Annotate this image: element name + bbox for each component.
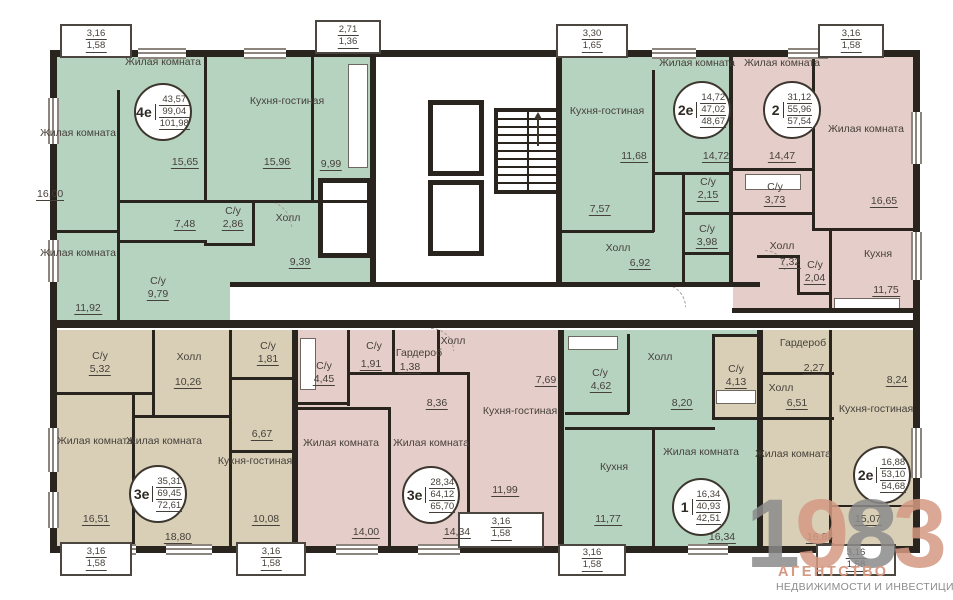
room-label-living: Жилая комната [125,57,201,69]
wall [392,330,395,374]
balcony-dim: 3,16 [841,28,862,40]
room-label-living: Жилая комната [40,248,116,260]
room-area: 9,39 [289,256,311,269]
balcony-dim: 1,58 [582,559,603,571]
apartment-type: 3е [134,486,154,502]
room-label-wardrobe: Гардероб [780,338,826,350]
wall [812,228,913,231]
apartment-badge-2: 2 31,12 55,96 57,54 [763,81,821,139]
room-area: 10,26 [174,376,202,389]
window [244,48,286,59]
room-area: 8,36 [426,397,448,410]
room-label-wc: С/у [699,224,715,236]
balcony-dimensions: 3,16 1,58 [582,547,603,572]
wall [152,330,155,415]
apartment-badge-3e-left: 3е 35,31 69,45 72,61 [129,465,187,523]
room-area: 14,34 [443,526,471,539]
balcony-dimensions: 3,16 1,58 [841,28,862,53]
room-label-wc: С/у [700,177,716,189]
wall [812,56,815,230]
room-label-kitchen-living: Кухня-гостиная [569,106,645,118]
balcony-dimensions: 3,30 1,65 [582,28,603,53]
room-label-wc: С/у [260,341,276,353]
apartment-living-area: 43,57 [159,94,190,106]
room-label-living: Жилая комната [659,58,735,70]
balcony-dim: 3,16 [261,546,282,558]
apartment-total-area: 101,98 [159,118,190,130]
apartment-living-area: 31,12 [787,92,813,104]
room-area: 11,77 [594,513,622,526]
balcony-dimensions: 3,16 1,58 [86,28,107,53]
elevator-shaft [428,100,484,176]
wall [627,334,630,414]
wall [229,330,232,546]
balcony-dim: 2,71 [338,24,359,36]
balcony-dim: 1,36 [338,36,359,48]
room-label-living: Жилая комната [40,128,116,140]
wall [829,231,832,308]
window [336,544,378,555]
balcony-dimensions: 2,71 1,36 [338,24,359,49]
wall [652,172,732,175]
wall [292,330,298,546]
room-area: 14,00 [352,526,380,539]
wall [684,212,732,215]
room-label-hall: Холл [770,241,795,253]
balcony-dimensions: 3,16 1,58 [86,546,107,571]
wall [370,50,376,287]
room-label-kitchen: Кухня [600,462,628,474]
wall [712,417,760,420]
room-area: 3,98 [696,236,718,249]
room-label-hall: Холл [606,243,631,255]
balcony-dim: 1,58 [261,558,282,570]
room-label-living: Жилая комната [303,438,379,450]
wall [652,427,655,546]
fixture [716,390,756,404]
room-label-hall: Холл [276,213,301,225]
balcony-dimensions: 3,16 1,58 [261,546,282,571]
room-area: 2,15 [697,189,719,202]
room-label-wc: С/у [807,260,823,272]
room-label-wc: С/у [92,351,108,363]
wall [732,308,913,313]
room-area: 9,99 [320,158,342,171]
room-label-wc: С/у [150,276,166,288]
apartment-badge-2e-top: 2е 14,72 47,02 48,67 [673,81,731,139]
apartment-type: 3е [407,487,427,503]
wall [232,377,292,380]
balcony-dim: 1,58 [841,40,862,52]
wall [388,407,391,546]
room-label-hall: Холл [177,352,202,364]
room-area: 11,92 [74,302,102,315]
balcony-dim: 3,16 [86,28,107,40]
wall [712,334,760,337]
room-label-hall: Холл [648,352,673,364]
wall [311,56,314,202]
apartment-area: 55,96 [787,104,813,116]
room-label-hall: Холл [769,383,794,395]
wall [56,230,117,233]
room-label-living: Жилая комната [828,124,904,136]
balcony-dim: 3,16 [582,547,603,559]
wall [732,168,814,171]
apartment-total-area: 57,54 [787,116,813,128]
wall [232,450,292,453]
room-area: 7,69 [535,374,557,387]
room-area: 8,24 [886,374,908,387]
agency-logo-line1: АГЕНТСТВО [778,564,889,580]
balcony-dim: 1,58 [86,558,107,570]
wall [230,282,760,287]
room-area: 2,27 [803,362,825,375]
room-area: 16,00 [36,188,64,201]
window [911,232,922,280]
wall [117,240,207,243]
wall [298,402,349,405]
room-area: 6,67 [251,428,273,441]
room-area: 1,81 [257,353,279,366]
wall [556,50,562,287]
room-area: 18,80 [164,531,192,544]
apartment-type: 1 [681,499,693,515]
balcony-dim: 1,65 [582,40,603,52]
apartment-living-area: 16,34 [696,489,722,501]
room-area: 6,92 [629,257,651,270]
apartment-type: 2 [772,102,784,118]
wall [298,407,390,410]
room-area: 14,47 [768,150,796,163]
window [48,492,59,528]
window [418,544,460,555]
room-label-wc: С/у [225,206,241,218]
apartment-badge-4e: 4е 43,57 99,04 101,98 [134,83,192,141]
wall [117,200,373,203]
room-label-wc: С/у [728,364,744,376]
wall [684,252,732,255]
wall [347,330,350,406]
fixture [568,336,618,350]
balcony-dimensions: 3,16 1,58 [491,516,512,541]
apartment-badge-1: 1 16,34 40,93 42,51 [672,478,730,536]
apartment-living-area: 14,72 [700,92,726,104]
floor-plan: Жилая комната 15,65 Кухня-гостиная 15,96… [0,0,953,600]
balcony-dim: 1,58 [491,528,512,540]
apartment-type: 2е [678,102,698,118]
wall [760,417,834,420]
wall [565,427,715,430]
apartment-total-area: 72,61 [156,500,182,512]
wall [565,412,629,415]
room-label-wc: С/у [767,182,783,194]
apartment-area: 64,12 [429,489,455,501]
apartment-type: 4е [136,104,156,120]
room-label-wc: С/у [592,368,608,380]
room-area: 7,57 [589,203,611,216]
room-label-kitchen-living: Кухня-гостиная [217,456,293,468]
stairs-divider [527,108,529,194]
wall [562,230,654,233]
elevator-shaft [318,178,372,258]
window [166,544,212,555]
apartment-total-area: 65,70 [429,501,455,513]
room-label-wc: С/у [316,361,332,373]
room-label-living: Жилая комната [57,436,133,448]
apartment-area: 69,45 [156,488,182,500]
room-label-hall: Холл [441,336,466,348]
room-area: 4,45 [313,373,335,386]
wall [56,392,154,395]
room-area: 3,73 [764,194,786,207]
room-area: 7,32 [779,256,801,269]
elevator-shaft [428,180,484,256]
wall [204,56,207,202]
room-label-kitchen-living: Кухня-гостиная [482,406,558,418]
room-label-living: Жилая комната [663,447,739,459]
apartment-area: 99,04 [159,106,190,118]
room-area: 6,51 [786,397,808,410]
room-area: 4,13 [725,376,747,389]
apartment-total-area: 42,51 [696,513,722,525]
room-label-living: Жилая комната [393,438,469,450]
room-label-living: Жилая комната [126,436,202,448]
room-label-wardrobe: Гардероб [396,348,442,360]
logo-digit: 3 [893,479,942,588]
room-area: 2,86 [222,218,244,231]
room-area: 9,79 [147,288,169,301]
apartment-living-area: 35,31 [156,476,182,488]
room-area: 15,96 [263,156,291,169]
wall [732,212,814,215]
apartment-area: 40,93 [696,501,722,513]
apartment-badge-3e-mid: 3е 28,34 64,12 65,70 [402,466,460,524]
wall [558,330,564,546]
room-label-living: Жилая комната [744,58,820,70]
room-label-wc: С/у [366,341,382,353]
room-label-kitchen-living: Кухня-гостиная [838,404,914,416]
wall [652,70,655,232]
fixture [348,64,368,168]
room-area: 8,20 [671,397,693,410]
room-label-kitchen-living: Кухня-гостиная [249,96,325,108]
wall [117,90,120,320]
wall [712,334,715,420]
room-area: 7,48 [174,218,196,231]
wall [252,200,255,246]
room-area: 5,32 [89,363,111,376]
room-area: 1,91 [360,358,382,371]
room-area: 11,75 [872,284,900,297]
balcony-dim: 3,16 [491,516,512,528]
room-area: 16,51 [82,513,110,526]
room-area: 2,04 [804,272,826,285]
apartment-total-area: 48,67 [700,116,726,128]
wall [50,320,913,328]
window [911,428,922,478]
apartment-living-area: 16,88 [880,457,906,469]
wall [682,175,685,282]
stairs-arrow-stem [537,118,539,146]
room-area: 1,38 [399,361,421,374]
apartment-area: 47,02 [700,104,726,116]
balcony-dim: 1,58 [86,40,107,52]
wall [132,415,231,418]
room-area: 14,72 [702,150,730,163]
room-area: 4,62 [590,380,612,393]
room-label-kitchen: Кухня [864,249,892,261]
wall [204,243,255,246]
window [688,544,728,555]
apartment-living-area: 28,34 [429,477,455,489]
wall [797,292,831,295]
room-area: 15,65 [171,156,199,169]
window [911,112,922,164]
balcony-dim: 3,30 [582,28,603,40]
room-area: 16,65 [870,195,898,208]
room-area: 10,08 [252,513,280,526]
room-area: 11,99 [491,484,519,497]
room-label-living: Жилая комната [755,449,831,461]
agency-logo-line2: НЕДВИЖИМОСТИ И ИНВЕСТИЦИЙ [776,581,953,593]
room-area: 11,68 [620,150,648,163]
balcony-dim: 3,16 [86,546,107,558]
